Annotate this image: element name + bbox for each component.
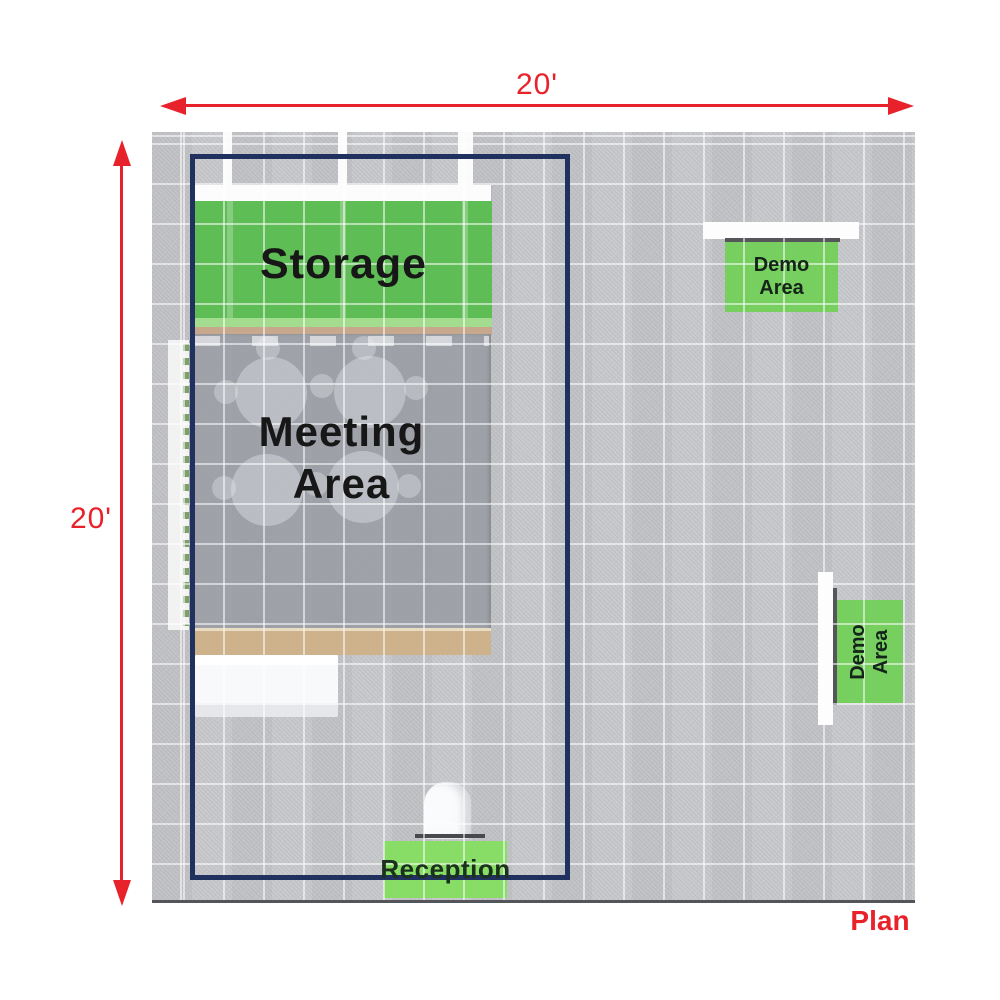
storage-area-label: Storage [260, 240, 427, 289]
arrow-head-up-icon [113, 140, 131, 166]
demo-area-top-label: Demo Area [754, 254, 810, 300]
planter-wall [168, 340, 189, 630]
demo-area-right-label: Demo Area [847, 624, 893, 680]
meeting-area-label-line2: Area [259, 458, 425, 510]
demo-counter-right [818, 572, 833, 725]
reception-area-label: Reception [380, 854, 510, 885]
arrow-head-left-icon [160, 97, 186, 115]
floor-plan: 20' 20' Storage [0, 0, 1000, 1000]
demo-area-right-label-line1: Demo [847, 624, 870, 680]
arrow-head-right-icon [888, 97, 914, 115]
dimension-line-vertical [120, 158, 123, 888]
arrow-head-down-icon [113, 880, 131, 906]
page-title: Plan [835, 905, 925, 937]
meeting-area-label: Meeting Area [259, 406, 425, 510]
demo-area-top-label-line2: Area [754, 277, 810, 300]
dimension-line-horizontal [178, 104, 896, 107]
dimension-horizontal-arrow [160, 97, 914, 115]
demo-counter-top [703, 222, 859, 239]
dimension-vertical-arrow [113, 140, 131, 906]
booth-carpet: Storage Meeting Area [152, 132, 915, 903]
plants [183, 344, 189, 626]
meeting-area-label-line1: Meeting [259, 406, 425, 458]
demo-area-right-label-line2: Area [870, 624, 893, 680]
demo-area-top: Demo Area [725, 242, 838, 312]
dimension-vertical-label: 20' [62, 502, 120, 536]
demo-area-right: Demo Area [837, 600, 903, 703]
demo-area-top-label-line1: Demo [754, 254, 810, 277]
